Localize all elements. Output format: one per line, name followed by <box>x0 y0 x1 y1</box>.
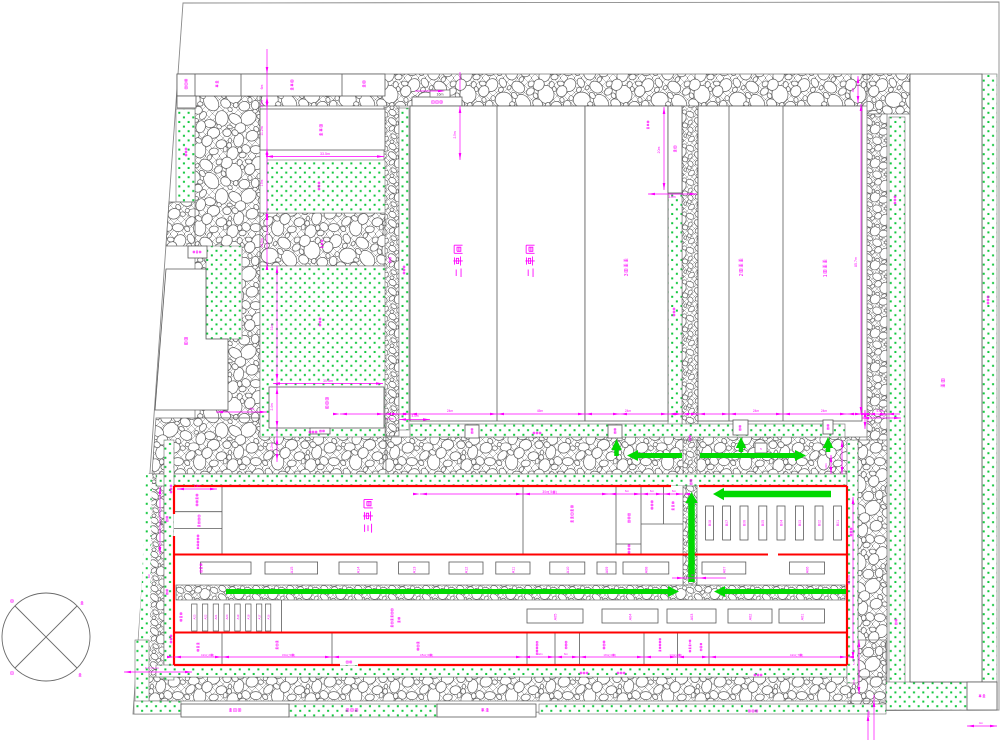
svg-text:(: ( <box>795 653 796 657</box>
svg-text:A11: A11 <box>511 567 515 573</box>
svg-text:A07: A07 <box>722 567 726 574</box>
svg-text:A08: A08 <box>644 567 648 574</box>
svg-text:2: 2 <box>739 273 745 276</box>
svg-text:4m: 4m <box>691 573 696 577</box>
svg-text:A09: A09 <box>605 567 609 574</box>
svg-text:31m: 31m <box>270 324 274 331</box>
svg-text:A06: A06 <box>806 567 810 574</box>
svg-text:B07: B07 <box>725 520 729 526</box>
svg-text:): ) <box>556 490 557 494</box>
svg-text:(: ( <box>425 653 426 657</box>
svg-text:A15: A15 <box>290 567 294 574</box>
svg-text:B02: B02 <box>817 520 821 526</box>
svg-text:6m: 6m <box>672 489 677 493</box>
svg-text:24m: 24m <box>447 409 454 413</box>
svg-text:17m: 17m <box>260 180 264 187</box>
svg-text:6m: 6m <box>650 489 655 493</box>
svg-text:4.5m: 4.5m <box>411 414 418 418</box>
svg-text:B05: B05 <box>761 520 765 526</box>
svg-text:): ) <box>681 653 682 657</box>
svg-text:5.1m: 5.1m <box>879 413 886 417</box>
svg-text:24m: 24m <box>753 409 760 413</box>
svg-text:A14: A14 <box>357 567 361 574</box>
svg-text:6m: 6m <box>564 652 569 656</box>
svg-text:11.2m: 11.2m <box>260 126 264 135</box>
svg-text:B01: B01 <box>836 520 840 526</box>
svg-text:8m: 8m <box>147 573 151 578</box>
svg-text:A12: A12 <box>465 567 469 574</box>
svg-text:12m: 12m <box>537 652 543 656</box>
svg-text:5: 5 <box>550 490 552 494</box>
svg-text:4m: 4m <box>851 87 855 92</box>
svg-text:10m: 10m <box>824 463 828 469</box>
svg-text:A20: A20 <box>225 614 229 619</box>
svg-text:A05: A05 <box>554 614 558 621</box>
svg-text:3.6m: 3.6m <box>668 195 675 199</box>
svg-text:B: B <box>688 642 692 644</box>
svg-text:2.5m: 2.5m <box>453 131 457 138</box>
svg-text:): ) <box>432 653 433 657</box>
svg-text:4m: 4m <box>160 520 164 525</box>
svg-text:B06: B06 <box>742 520 746 526</box>
svg-text:A03: A03 <box>690 614 694 621</box>
svg-text:A22: A22 <box>203 614 207 619</box>
svg-text:): ) <box>213 653 214 657</box>
svg-text:3.5m: 3.5m <box>852 678 856 685</box>
svg-text:85.7m: 85.7m <box>854 257 858 267</box>
svg-text:A02: A02 <box>749 614 753 621</box>
svg-text:A04: A04 <box>629 614 633 621</box>
svg-text:A17: A17 <box>257 614 261 619</box>
svg-text:6m: 6m <box>625 489 630 493</box>
svg-text:A10: A10 <box>566 567 570 574</box>
svg-text:30.5m: 30.5m <box>323 379 333 383</box>
svg-text:A18: A18 <box>247 614 251 619</box>
svg-text:2.4m: 2.4m <box>270 403 274 410</box>
svg-text:B04: B04 <box>779 520 783 526</box>
svg-text:45m: 45m <box>537 409 544 413</box>
svg-text:48.6m: 48.6m <box>847 575 851 585</box>
svg-text:5.7m: 5.7m <box>852 658 856 665</box>
svg-text:): ) <box>615 653 616 657</box>
svg-text:9.7m 6.1m: 9.7m 6.1m <box>145 666 160 670</box>
svg-text:14.5m: 14.5m <box>260 238 264 248</box>
svg-text:): ) <box>802 653 803 657</box>
svg-text:24m: 24m <box>625 409 632 413</box>
svg-text:6m: 6m <box>260 84 264 89</box>
svg-text:24m: 24m <box>821 409 828 413</box>
svg-text:A21: A21 <box>214 614 218 619</box>
svg-text:2.2m: 2.2m <box>270 443 274 450</box>
svg-text:16m: 16m <box>437 93 444 97</box>
svg-text:A19: A19 <box>236 614 240 619</box>
svg-text:A13: A13 <box>412 567 416 574</box>
svg-text:A23: A23 <box>193 614 197 619</box>
svg-text:4.8m: 4.8m <box>386 417 393 421</box>
svg-text:A01: A01 <box>800 614 804 621</box>
svg-text:3.0m: 3.0m <box>867 710 871 717</box>
svg-text:3.2m: 3.2m <box>260 100 264 107</box>
svg-text:(: ( <box>206 653 207 657</box>
svg-text:(: ( <box>287 653 288 657</box>
svg-text:5m: 5m <box>250 407 255 411</box>
svg-text:3: 3 <box>624 273 630 276</box>
svg-text:33.5m: 33.5m <box>320 152 330 156</box>
svg-text:20m: 20m <box>657 147 661 154</box>
svg-text:1: 1 <box>823 274 829 277</box>
svg-text:4m: 4m <box>979 721 984 725</box>
svg-text:B03: B03 <box>798 520 802 526</box>
svg-text:): ) <box>294 653 295 657</box>
svg-text:A16: A16 <box>266 614 270 619</box>
svg-text:B08: B08 <box>708 520 712 526</box>
svg-text:13m: 13m <box>194 484 201 488</box>
